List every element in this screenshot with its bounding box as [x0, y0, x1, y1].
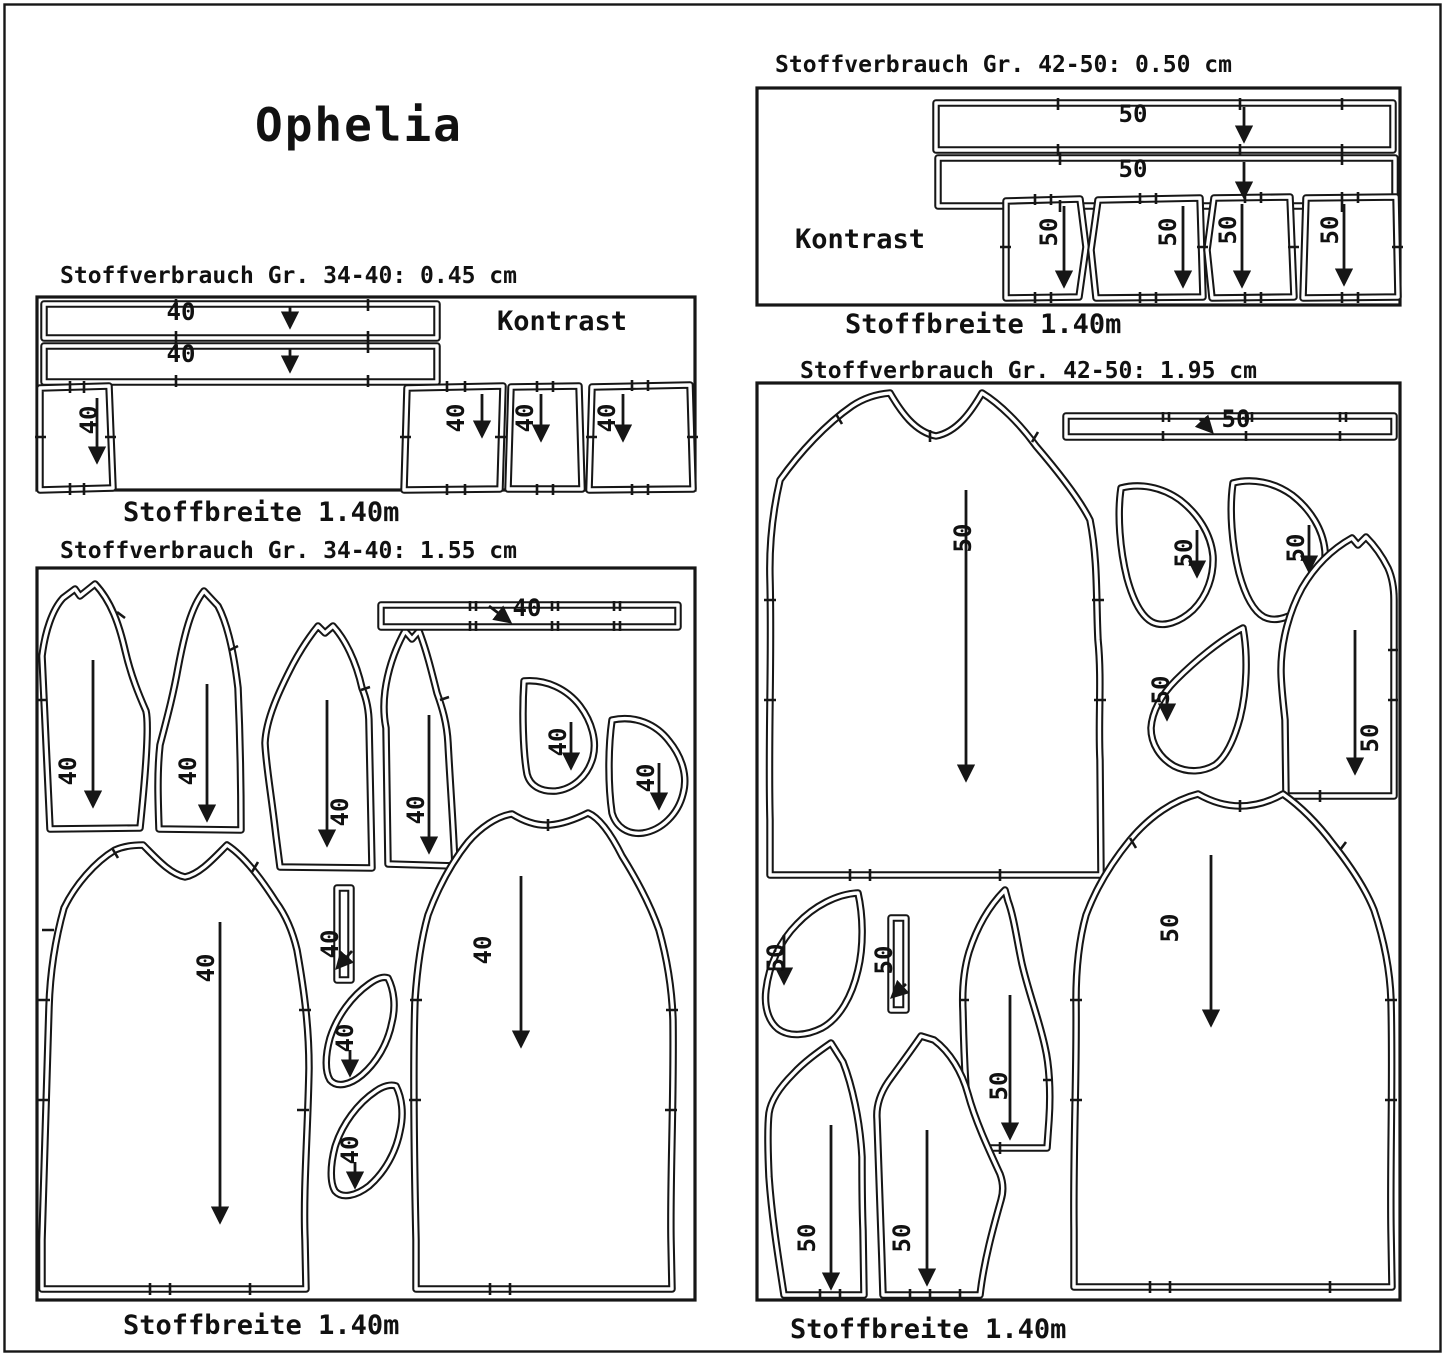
pattern-title: Ophelia — [255, 98, 463, 152]
pattern-sheet-canvas: Ophelia Stoffverbrauch Gr. 34-40: 0.45 c… — [0, 0, 1445, 1356]
piece-size-label: 40 — [192, 954, 220, 983]
piece-pocket-facing-1 — [1119, 486, 1213, 624]
piece-binding-strip-1 — [936, 103, 1393, 150]
piece-size-label: 40 — [167, 298, 196, 326]
panel-contrast-34-40: Stoffverbrauch Gr. 34-40: 0.45 cm Kontra… — [35, 263, 698, 528]
piece-front-bodice — [158, 591, 241, 830]
piece-size-label: 50 — [1154, 218, 1182, 247]
piece-size-label: 40 — [593, 404, 621, 433]
piece-size-label: 40 — [316, 930, 344, 959]
piece-size-label: 50 — [1170, 539, 1198, 568]
piece-side-panel-right — [384, 631, 455, 866]
piece-side-panel-left — [265, 626, 372, 868]
piece-size-label: 50 — [949, 524, 977, 553]
piece-size-label: 40 — [442, 404, 470, 433]
piece-contrast-1 — [1006, 199, 1086, 298]
piece-size-label: 50 — [1222, 405, 1251, 433]
piece-contrast-3 — [1207, 197, 1294, 298]
panel-main-34-40: Stoffverbrauch Gr. 34-40: 1.55 cm 40 40 … — [36, 538, 695, 1341]
piece-size-label: 40 — [331, 1024, 359, 1053]
piece-size-label: 40 — [513, 594, 542, 622]
piece-size-label: 50 — [1147, 676, 1175, 705]
piece-size-label: 50 — [1035, 218, 1063, 247]
piece-size-label: 50 — [1119, 155, 1148, 183]
piece-size-label: 50 — [1282, 534, 1310, 563]
panel-main-42-50: Stoffverbrauch Gr. 42-50: 1.95 cm 50 50 … — [757, 358, 1400, 1345]
piece-size-label: 40 — [544, 728, 572, 757]
piece-size-label: 50 — [1356, 724, 1384, 753]
piece-dress-panel-left — [42, 845, 309, 1289]
piece-size-label: 50 — [888, 1224, 916, 1253]
piece-size-label: 40 — [402, 796, 430, 825]
piece-size-label: 40 — [336, 1136, 364, 1165]
pattern-cutting-layout-sheet: Ophelia Stoffverbrauch Gr. 34-40: 0.45 c… — [0, 0, 1445, 1356]
panel-header: Stoffverbrauch Gr. 34-40: 0.45 cm — [60, 263, 517, 289]
piece-size-label: 40 — [167, 340, 196, 368]
piece-binding-strip-2 — [44, 346, 437, 382]
piece-contrast-2 — [404, 386, 503, 490]
piece-contrast-3 — [508, 386, 582, 489]
piece-size-label: 40 — [469, 936, 497, 965]
piece-size-label: 50 — [870, 946, 898, 975]
piece-size-label: 50 — [985, 1072, 1013, 1101]
panel-header: Stoffverbrauch Gr. 34-40: 1.55 cm — [60, 538, 517, 564]
panel-header: Stoffverbrauch Gr. 42-50: 0.50 cm — [775, 52, 1232, 78]
piece-size-label: 40 — [75, 406, 103, 435]
piece-contrast-2 — [1091, 198, 1203, 298]
piece-size-label: 50 — [1316, 216, 1344, 245]
contrast-label: Kontrast — [497, 306, 627, 337]
piece-size-label: 40 — [174, 757, 202, 786]
piece-size-label: 40 — [326, 798, 354, 827]
fabric-width-label: Stoffbreite 1.40m — [790, 1314, 1066, 1345]
contrast-label: Kontrast — [795, 224, 925, 255]
piece-contrast-1 — [40, 386, 113, 490]
piece-size-label: 40 — [511, 404, 539, 433]
panel-contrast-42-50: Stoffverbrauch Gr. 42-50: 0.50 cm Kontra… — [757, 52, 1403, 340]
piece-size-label: 50 — [1214, 216, 1242, 245]
fabric-width-label: Stoffbreite 1.40m — [123, 1310, 399, 1341]
piece-contrast-4 — [589, 385, 693, 490]
panel-header: Stoffverbrauch Gr. 42-50: 1.95 cm — [800, 358, 1257, 384]
piece-binding-strip-1 — [44, 304, 437, 338]
piece-size-label: 50 — [793, 1224, 821, 1253]
piece-size-label: 40 — [54, 757, 82, 786]
piece-contrast-4 — [1303, 197, 1398, 298]
fabric-width-label: Stoffbreite 1.40m — [123, 497, 399, 528]
piece-back-bodice — [42, 584, 147, 829]
piece-bodice-left — [768, 1043, 864, 1295]
piece-size-label: 50 — [762, 944, 790, 973]
fabric-width-label: Stoffbreite 1.40m — [845, 309, 1121, 340]
piece-size-label: 40 — [632, 764, 660, 793]
piece-dress-panel-back — [769, 393, 1101, 875]
piece-dress-panel-front — [1074, 794, 1392, 1287]
piece-dress-panel-right — [414, 813, 673, 1289]
piece-size-label: 50 — [1156, 914, 1184, 943]
piece-size-label: 50 — [1119, 100, 1148, 128]
